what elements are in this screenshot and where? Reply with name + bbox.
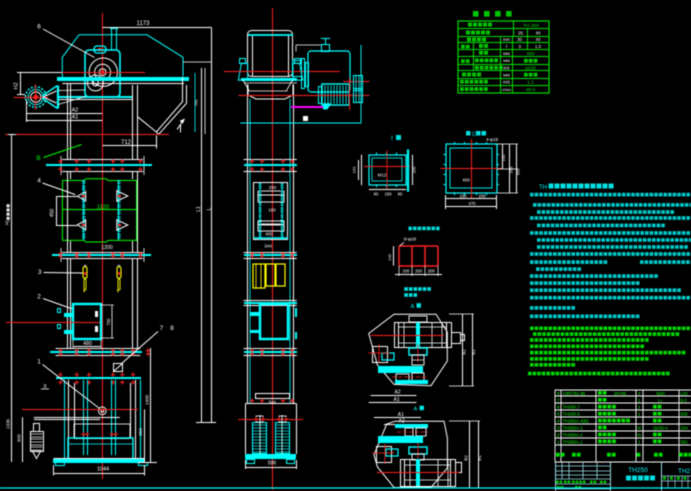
svg-text:90: 90 [398,191,403,196]
svg-text:250: 250 [269,185,277,190]
svg-text:≥220: ≥220 [525,65,536,71]
svg-text:2: 2 [557,433,560,438]
svg-text:400: 400 [265,232,273,237]
svg-text:L: L [206,207,212,210]
svg-text:596: 596 [268,461,277,467]
svg-text:234: 234 [681,426,689,431]
svg-text:A: A [411,304,415,310]
svg-text:TH250.7: TH250.7 [563,405,580,410]
svg-text:B1: B1 [471,349,476,355]
svg-text:TH250A.2: TH250A.2 [563,433,583,438]
svg-text:150: 150 [501,154,506,161]
svg-text:25: 25 [518,30,524,35]
svg-text:90: 90 [374,191,379,196]
svg-text:1200: 1200 [101,245,113,251]
svg-text:400: 400 [462,178,470,183]
svg-text:1044: 1044 [97,467,109,473]
svg-text:B2: B2 [464,455,469,461]
svg-text:9.0: 9.0 [681,398,688,403]
svg-text:1: 1 [638,405,641,410]
svg-text:H2: H2 [14,82,20,89]
svg-text:TH250A.1: TH250A.1 [563,439,583,444]
svg-text:450: 450 [526,51,534,57]
svg-text:TH2: TH2 [678,468,691,475]
svg-text:H(: H( [5,220,10,225]
svg-text:7: 7 [160,325,164,332]
svg-text:4: 4 [638,391,641,396]
svg-text:6: 6 [557,405,560,410]
svg-text:6: 6 [37,24,41,31]
svg-text:1: 1 [638,439,641,444]
svg-text:TH250A.4(B): TH250A.4(B) [563,419,589,424]
svg-text:5: 5 [557,412,560,417]
svg-text:1120: 1120 [97,204,109,210]
svg-text:Q235-A: Q235-A [653,426,668,431]
svg-text:r/min: r/min [502,87,511,92]
svg-text:20×85: 20×85 [614,391,627,396]
svg-text:GB5782-86: GB5782-86 [563,391,586,396]
svg-text:l: l [506,44,507,49]
svg-text:TH: TH [539,185,547,191]
svg-text:200: 200 [428,269,436,274]
svg-text:3: 3 [38,269,42,276]
svg-text:200: 200 [415,269,423,274]
svg-text:TH250A.3: TH250A.3 [563,426,583,431]
svg-text:A1: A1 [398,412,404,418]
svg-text:552: 552 [681,439,689,444]
svg-text:3: 3 [557,426,560,431]
svg-text:MM: MM [503,72,510,77]
svg-text:1.5: 1.5 [535,44,542,49]
svg-text:535: 535 [681,412,689,417]
svg-text:760: 760 [194,99,199,106]
svg-text:A2: A2 [72,108,79,114]
svg-text:260: 260 [509,166,514,173]
svg-text:450: 450 [49,209,55,218]
svg-text:150: 150 [460,193,468,198]
svg-text:350: 350 [515,168,520,175]
svg-text:L=: L= [658,398,663,403]
svg-text:180: 180 [268,208,276,213]
svg-text:1173: 1173 [137,21,151,27]
svg-text:KN: KN [504,65,510,70]
svg-text:30: 30 [517,37,523,42]
svg-text:1: 1 [37,359,41,366]
svg-text:8: 8 [170,325,174,332]
svg-text:1335: 1335 [6,418,11,429]
svg-text:A1: A1 [72,114,79,120]
svg-text:800: 800 [17,434,22,442]
svg-text:mm: mm [503,37,511,42]
svg-text:L02: L02 [681,391,689,396]
svg-text:N: N [638,433,641,438]
svg-text:TH250.6: TH250.6 [563,412,580,417]
svg-text:344: 344 [264,244,272,249]
svg-text:1: 1 [638,398,641,403]
svg-text:TH 250: TH 250 [523,23,539,29]
svg-text:L1: L1 [196,206,202,212]
svg-text:4: 4 [557,419,560,424]
svg-text:M12: M12 [378,173,387,178]
svg-text:200: 200 [479,193,487,198]
svg-text:200: 200 [411,166,416,174]
svg-text:150: 150 [385,191,393,196]
svg-text:A2: A2 [395,390,401,396]
svg-text:350: 350 [138,428,143,436]
svg-text:712: 712 [121,140,132,146]
svg-text:m/s: m/s [503,80,510,85]
svg-text:C: C [472,132,476,138]
svg-text:4-φ18: 4-φ18 [486,137,498,142]
svg-text:1400: 1400 [145,394,150,405]
svg-text:46.5: 46.5 [526,87,536,93]
svg-text:B: B [36,155,40,162]
svg-text:B2: B2 [461,349,466,355]
svg-text:MM: MM [503,51,510,56]
svg-text:150: 150 [352,166,357,173]
svg-text:1.1: 1.1 [527,80,534,86]
svg-text:200: 200 [403,269,411,274]
svg-text:TH250: TH250 [628,467,648,474]
svg-text:B1: B1 [477,455,482,461]
svg-text:4: 4 [37,178,41,185]
svg-text:2: 2 [37,294,41,301]
svg-text:8: 8 [557,391,560,396]
svg-text:7: 7 [557,398,560,403]
svg-text:1: 1 [557,439,560,444]
svg-text:470: 470 [469,201,477,206]
svg-text:40: 40 [535,37,541,42]
svg-text:A: A [414,407,418,413]
svg-text:40: 40 [535,30,541,35]
svg-text:1: 1 [638,412,641,417]
svg-text:MM: MM [503,58,510,63]
svg-text:8-φ18: 8-φ18 [404,237,417,242]
svg-text:100: 100 [387,253,392,260]
svg-text:750: 750 [106,318,111,326]
svg-text:N: N [638,426,641,431]
svg-text:M20: M20 [656,391,665,396]
